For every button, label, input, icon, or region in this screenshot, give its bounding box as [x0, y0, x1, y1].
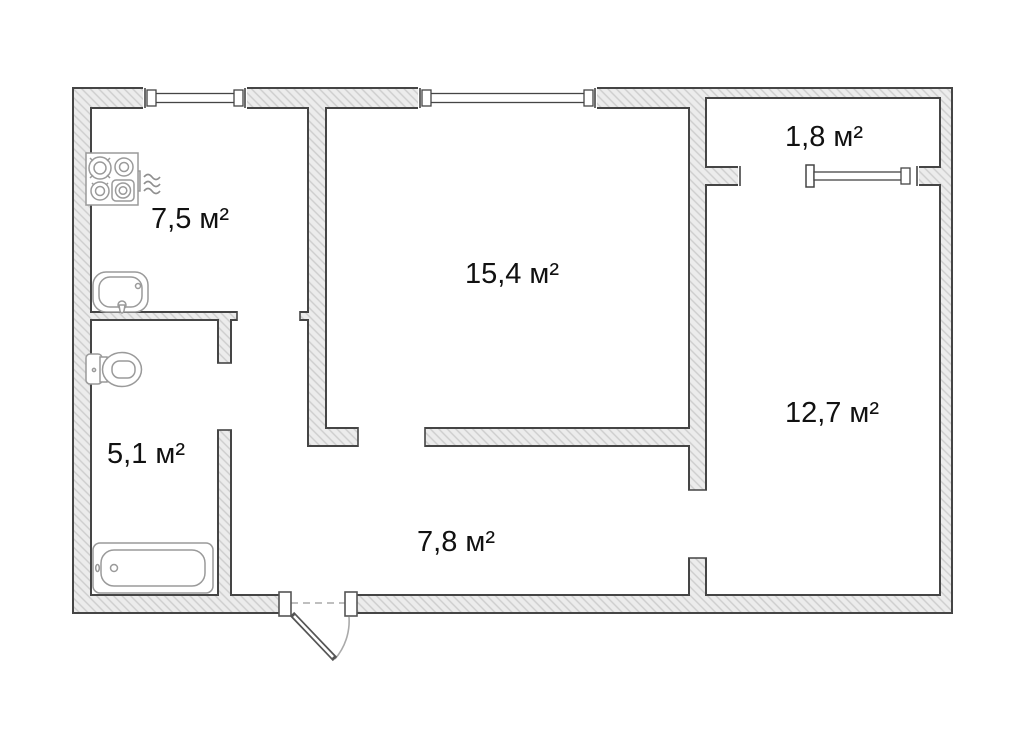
- window-end-cap: [147, 90, 156, 106]
- living-room-area-label: 15,4 м²: [465, 258, 559, 290]
- window-icon: [430, 94, 585, 103]
- room-bedroom: [706, 185, 940, 595]
- door-swing-arc: [335, 617, 349, 659]
- balcony-area-label: 1,8 м²: [785, 121, 863, 153]
- door-jamb: [279, 592, 291, 616]
- kitchen-area-label: 7,5 м²: [151, 203, 229, 235]
- window-icon: [154, 94, 236, 103]
- entrance-door: [279, 591, 357, 659]
- balcony-door-window-block: [738, 163, 919, 189]
- door-opening: [358, 426, 425, 448]
- window-end-cap: [901, 168, 910, 184]
- hallway-area-label: 7,8 м²: [417, 526, 495, 558]
- door-opening: [216, 363, 233, 430]
- door-jamb: [345, 592, 357, 616]
- toilet-icon: [86, 353, 142, 387]
- stove-icon: [86, 153, 140, 205]
- floor-plan-drawing: 7,5 м² 15,4 м² 1,8 м² 12,7 м² 5,1 м² 7,8…: [0, 0, 1024, 751]
- bedroom-area-label: 12,7 м²: [785, 397, 879, 429]
- living-room-window: [418, 86, 597, 110]
- sink-icon: [93, 272, 148, 313]
- kitchen-window: [143, 86, 247, 110]
- bathtub-icon: [93, 543, 213, 593]
- bathroom-area-label: 5,1 м²: [107, 438, 185, 470]
- window-end-cap: [584, 90, 593, 106]
- window-icon: [814, 172, 906, 180]
- door-opening: [687, 490, 708, 558]
- floor-plan-page: 7,5 м² 15,4 м² 1,8 м² 12,7 м² 5,1 м² 7,8…: [0, 0, 1024, 751]
- balcony-door-jamb: [806, 165, 814, 187]
- door-opening: [237, 309, 300, 322]
- window-end-cap: [422, 90, 431, 106]
- window-end-cap: [234, 90, 243, 106]
